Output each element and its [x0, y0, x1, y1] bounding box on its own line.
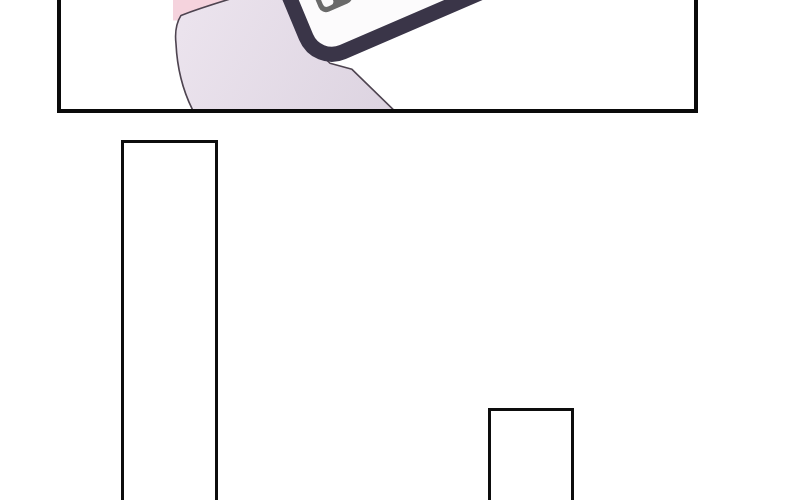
phone-frame-and-screen	[61, 0, 694, 63]
comic-page	[0, 0, 800, 500]
comic-panel-artwork	[61, 0, 694, 109]
comic-panel-outline-right	[488, 408, 574, 500]
smartphone	[61, 0, 694, 63]
comic-panel-outline-left	[121, 140, 218, 500]
comic-panel-top	[57, 0, 698, 113]
